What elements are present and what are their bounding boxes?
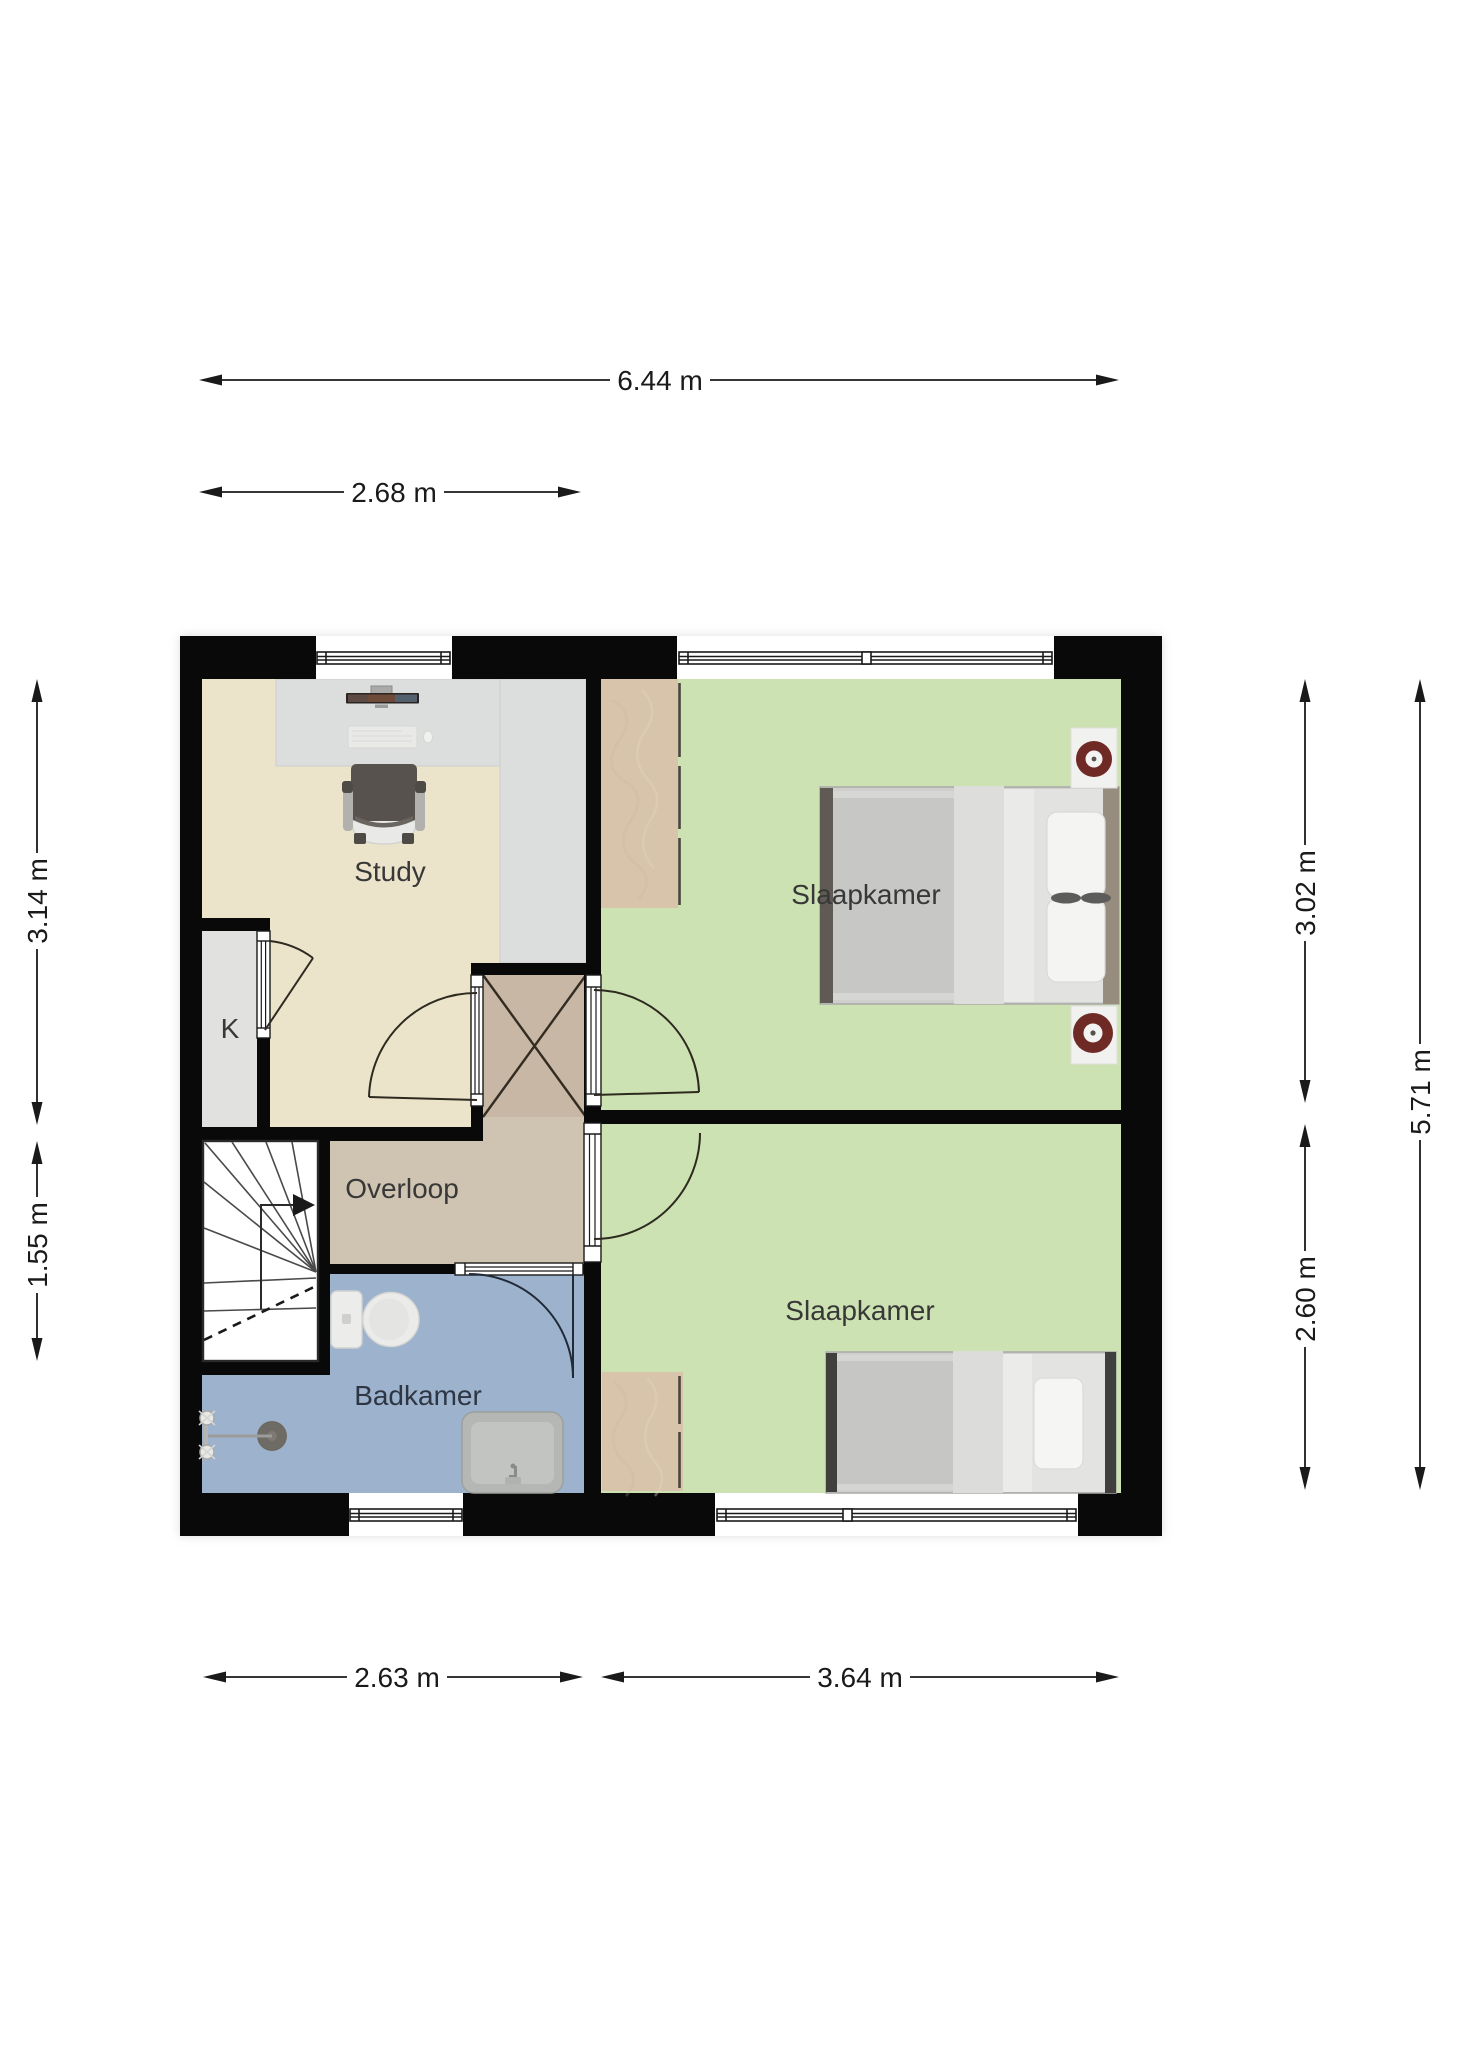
svg-text:Study: Study	[354, 856, 426, 887]
svg-text:3.64 m: 3.64 m	[817, 1662, 903, 1693]
svg-text:Slaapkamer: Slaapkamer	[785, 1295, 934, 1326]
svg-text:Overloop: Overloop	[345, 1173, 459, 1204]
svg-text:2.60 m: 2.60 m	[1290, 1256, 1321, 1342]
svg-text:Slaapkamer: Slaapkamer	[791, 879, 940, 910]
svg-text:Badkamer: Badkamer	[354, 1380, 482, 1411]
svg-text:6.44 m: 6.44 m	[617, 365, 703, 396]
svg-text:2.68 m: 2.68 m	[351, 477, 437, 508]
svg-text:3.02 m: 3.02 m	[1290, 850, 1321, 936]
svg-text:1.55 m: 1.55 m	[22, 1202, 53, 1288]
svg-text:3.14 m: 3.14 m	[22, 858, 53, 944]
svg-text:K: K	[221, 1013, 240, 1044]
svg-text:5.71 m: 5.71 m	[1405, 1049, 1436, 1135]
svg-text:2.63 m: 2.63 m	[354, 1662, 440, 1693]
